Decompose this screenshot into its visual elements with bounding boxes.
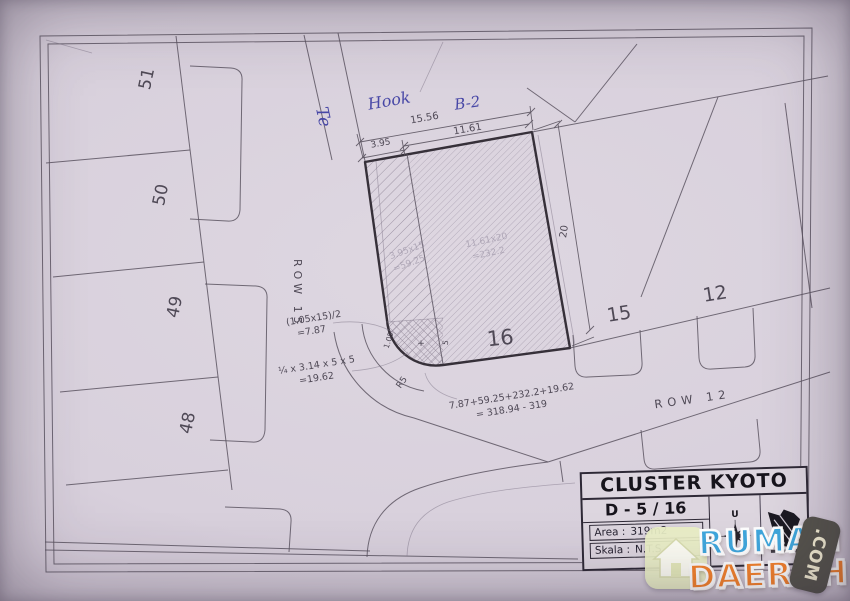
handwritten-notes: Te Hook B-2 (311, 88, 481, 129)
scanned-site-plan-photo: 51 50 49 48 ROW 15 3.95x15 =59.25 11.61x… (0, 0, 850, 601)
plot-number-48: 48 (176, 410, 200, 435)
scale-label: Skala : (595, 544, 631, 557)
plot-number-51: 51 (135, 66, 159, 91)
left-plot-column: 51 50 49 48 (46, 36, 291, 552)
logo-cell (760, 494, 808, 567)
north-label: U (731, 510, 739, 520)
row15-road: ROW 15 (291, 33, 365, 328)
pen-block-note: B-2 (452, 92, 481, 114)
driveway-pad-1 (190, 66, 242, 221)
area-row: Area : 319m2 (589, 522, 703, 541)
driveway-pad-2 (205, 284, 267, 442)
subject-plot-16: 3.95x15 =59.25 11.61x20 =232.2 16 1.05 +… (365, 132, 575, 391)
dim-main-top: 11.61 (453, 122, 483, 138)
pen-hook-note: Hook (365, 88, 412, 114)
title-block: CLUSTER KYOTO D - 5 / 16 Area : 319m2 Sk… (580, 466, 811, 571)
road-corner-curves (45, 324, 578, 559)
scale-row: Skala : N.T.S (590, 540, 704, 559)
subject-plot-number: 16 (486, 325, 515, 352)
dim-total-top: 15.56 (410, 111, 440, 127)
plot-number-50: 50 (149, 182, 173, 207)
driveway-plot15 (573, 330, 642, 377)
developer-logo-icon (764, 505, 805, 556)
plot-number-15: 15 (605, 301, 632, 327)
compass-rose-icon: U (715, 506, 756, 557)
plot-number-12: 12 (701, 281, 728, 307)
pen-side-note: Te (311, 105, 335, 129)
corner-plus-mark: + (417, 339, 425, 349)
scale-value: N.T.S (635, 543, 662, 556)
dim-depth-right: 20 (558, 224, 571, 238)
compass-cell: U (709, 495, 762, 568)
area-label: Area : (594, 526, 625, 539)
dim-strip-top: 3.95 (370, 137, 391, 150)
plot-number-49: 49 (163, 294, 187, 319)
area-value: 319m2 (630, 525, 667, 538)
row12-road: ROW 12 (548, 288, 830, 482)
unit-number: D - 5 / 16 (582, 497, 709, 524)
fillet-radius-label: R5 (395, 375, 410, 391)
driveway-pad-3 (225, 507, 291, 552)
